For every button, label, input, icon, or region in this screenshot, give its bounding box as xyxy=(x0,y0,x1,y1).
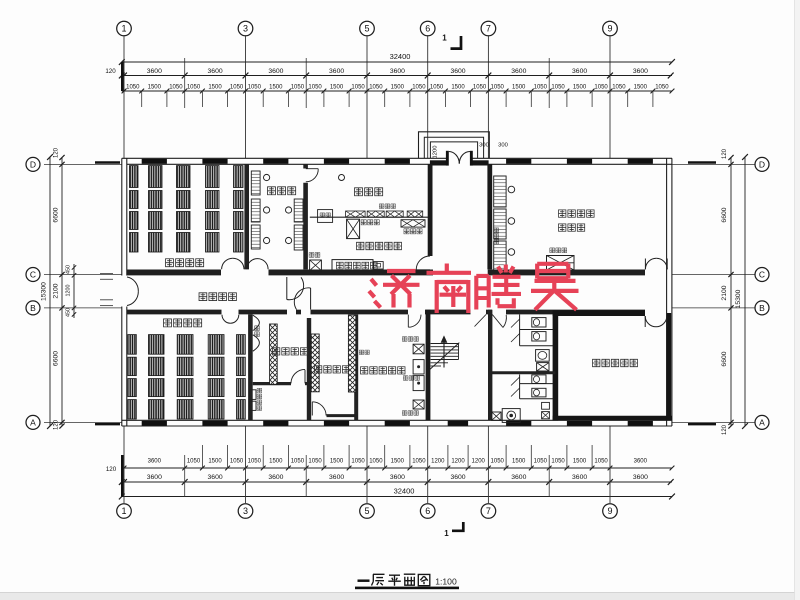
svg-text:1050: 1050 xyxy=(230,84,244,90)
svg-text:1: 1 xyxy=(121,506,126,516)
svg-text:D: D xyxy=(759,160,765,170)
svg-text:1: 1 xyxy=(121,24,126,34)
svg-text:3600: 3600 xyxy=(208,474,223,481)
svg-text:1050: 1050 xyxy=(308,458,322,464)
svg-text:3600: 3600 xyxy=(633,68,648,75)
svg-text:3600: 3600 xyxy=(390,68,405,75)
svg-text:3600: 3600 xyxy=(329,474,344,481)
svg-text:1050: 1050 xyxy=(248,84,262,90)
svg-text:1500: 1500 xyxy=(330,458,344,464)
svg-text:3600: 3600 xyxy=(147,474,162,481)
svg-text:3600: 3600 xyxy=(572,68,587,75)
svg-text:1500: 1500 xyxy=(208,84,222,90)
svg-text:A: A xyxy=(30,418,36,428)
svg-text:120: 120 xyxy=(54,419,60,430)
svg-text:2100: 2100 xyxy=(721,285,728,300)
svg-text:D: D xyxy=(30,160,36,170)
svg-text:1050: 1050 xyxy=(187,458,201,464)
svg-text:1050: 1050 xyxy=(308,84,322,90)
svg-text:1050: 1050 xyxy=(369,84,383,90)
svg-text:1050: 1050 xyxy=(430,84,444,90)
svg-text:1050: 1050 xyxy=(230,458,244,464)
svg-text:1500: 1500 xyxy=(573,458,587,464)
svg-text:3600: 3600 xyxy=(450,68,465,75)
svg-text:B: B xyxy=(30,303,36,313)
svg-text:1500: 1500 xyxy=(512,84,526,90)
svg-text:1200: 1200 xyxy=(472,458,486,464)
svg-text:1500: 1500 xyxy=(573,84,587,90)
svg-text:5: 5 xyxy=(364,24,369,34)
svg-text:1050: 1050 xyxy=(534,84,548,90)
svg-text:C: C xyxy=(30,270,36,280)
svg-text:1200: 1200 xyxy=(66,285,72,297)
svg-text:120: 120 xyxy=(722,424,728,435)
svg-text:1: 1 xyxy=(444,529,449,538)
svg-text:B: B xyxy=(759,303,765,313)
svg-text:7: 7 xyxy=(486,506,491,516)
svg-text:3600: 3600 xyxy=(268,474,283,481)
svg-text:1050: 1050 xyxy=(473,84,487,90)
svg-text:450: 450 xyxy=(66,265,72,274)
svg-text:1500: 1500 xyxy=(391,458,405,464)
svg-text:1500: 1500 xyxy=(330,84,344,90)
svg-text:1050: 1050 xyxy=(169,84,183,90)
svg-text:2100: 2100 xyxy=(53,283,60,298)
svg-text:1050: 1050 xyxy=(594,458,608,464)
svg-text:1050: 1050 xyxy=(491,84,505,90)
svg-text:6600: 6600 xyxy=(721,207,728,222)
svg-text:1050: 1050 xyxy=(594,84,608,90)
svg-text:120: 120 xyxy=(105,68,116,75)
svg-text:6600: 6600 xyxy=(53,351,60,366)
svg-text:7: 7 xyxy=(486,24,491,34)
svg-text:1500: 1500 xyxy=(208,458,222,464)
svg-text:3600: 3600 xyxy=(634,458,648,464)
svg-text:1050: 1050 xyxy=(655,84,669,90)
svg-text:1050: 1050 xyxy=(187,84,201,90)
svg-text:450: 450 xyxy=(66,308,72,317)
svg-text:1050: 1050 xyxy=(612,84,626,90)
svg-text:1050: 1050 xyxy=(369,458,383,464)
svg-text:1050: 1050 xyxy=(291,84,305,90)
svg-text:32400: 32400 xyxy=(394,487,415,496)
svg-text:3600: 3600 xyxy=(511,474,526,481)
svg-text:3600: 3600 xyxy=(390,474,405,481)
svg-text:1050: 1050 xyxy=(412,84,426,90)
svg-text:1050: 1050 xyxy=(534,458,548,464)
svg-text:3600: 3600 xyxy=(633,474,648,481)
svg-text:3600: 3600 xyxy=(268,68,283,75)
svg-text:6600: 6600 xyxy=(721,351,728,366)
svg-text:300: 300 xyxy=(479,143,489,149)
svg-text:6: 6 xyxy=(425,506,430,516)
svg-text:1050: 1050 xyxy=(126,84,140,90)
svg-text:3600: 3600 xyxy=(450,474,465,481)
svg-text:1500: 1500 xyxy=(512,458,526,464)
svg-text:5: 5 xyxy=(364,506,369,516)
svg-text:3600: 3600 xyxy=(147,68,162,75)
svg-text:120: 120 xyxy=(722,148,728,159)
svg-text:6: 6 xyxy=(425,24,430,34)
svg-text:3600: 3600 xyxy=(572,474,587,481)
svg-text:1500: 1500 xyxy=(451,84,465,90)
svg-text:15300: 15300 xyxy=(735,289,742,308)
svg-text:1: 1 xyxy=(442,34,447,43)
svg-text:3600: 3600 xyxy=(511,68,526,75)
svg-text:1200: 1200 xyxy=(433,146,439,159)
svg-text:1500: 1500 xyxy=(269,458,283,464)
svg-text:C: C xyxy=(759,270,765,280)
svg-text:3: 3 xyxy=(243,506,248,516)
svg-text:1500: 1500 xyxy=(634,84,648,90)
svg-text:3: 3 xyxy=(243,24,248,34)
svg-text:300: 300 xyxy=(498,143,508,149)
svg-text:1050: 1050 xyxy=(491,458,505,464)
svg-text:9: 9 xyxy=(607,506,612,516)
svg-text:1050: 1050 xyxy=(291,458,305,464)
svg-text:32400: 32400 xyxy=(390,52,411,61)
svg-text:1500: 1500 xyxy=(148,84,162,90)
svg-text:1200: 1200 xyxy=(431,458,445,464)
svg-text:120: 120 xyxy=(106,466,117,473)
svg-text:6600: 6600 xyxy=(53,207,60,222)
svg-text:9: 9 xyxy=(607,24,612,34)
svg-text:15300: 15300 xyxy=(41,282,48,301)
svg-text:1500: 1500 xyxy=(269,84,283,90)
svg-text:1:100: 1:100 xyxy=(435,577,457,587)
svg-text:1500: 1500 xyxy=(391,84,405,90)
svg-text:1050: 1050 xyxy=(248,458,262,464)
svg-text:1050: 1050 xyxy=(551,84,565,90)
svg-text:1050: 1050 xyxy=(412,458,426,464)
svg-text:1050: 1050 xyxy=(351,458,365,464)
svg-text:3600: 3600 xyxy=(208,68,223,75)
svg-text:A: A xyxy=(759,418,765,428)
svg-text:1200: 1200 xyxy=(451,458,465,464)
svg-text:120: 120 xyxy=(54,147,60,158)
svg-text:1050: 1050 xyxy=(551,458,565,464)
svg-text:1050: 1050 xyxy=(351,84,365,90)
svg-text:3600: 3600 xyxy=(329,68,344,75)
svg-text:3600: 3600 xyxy=(148,458,162,464)
